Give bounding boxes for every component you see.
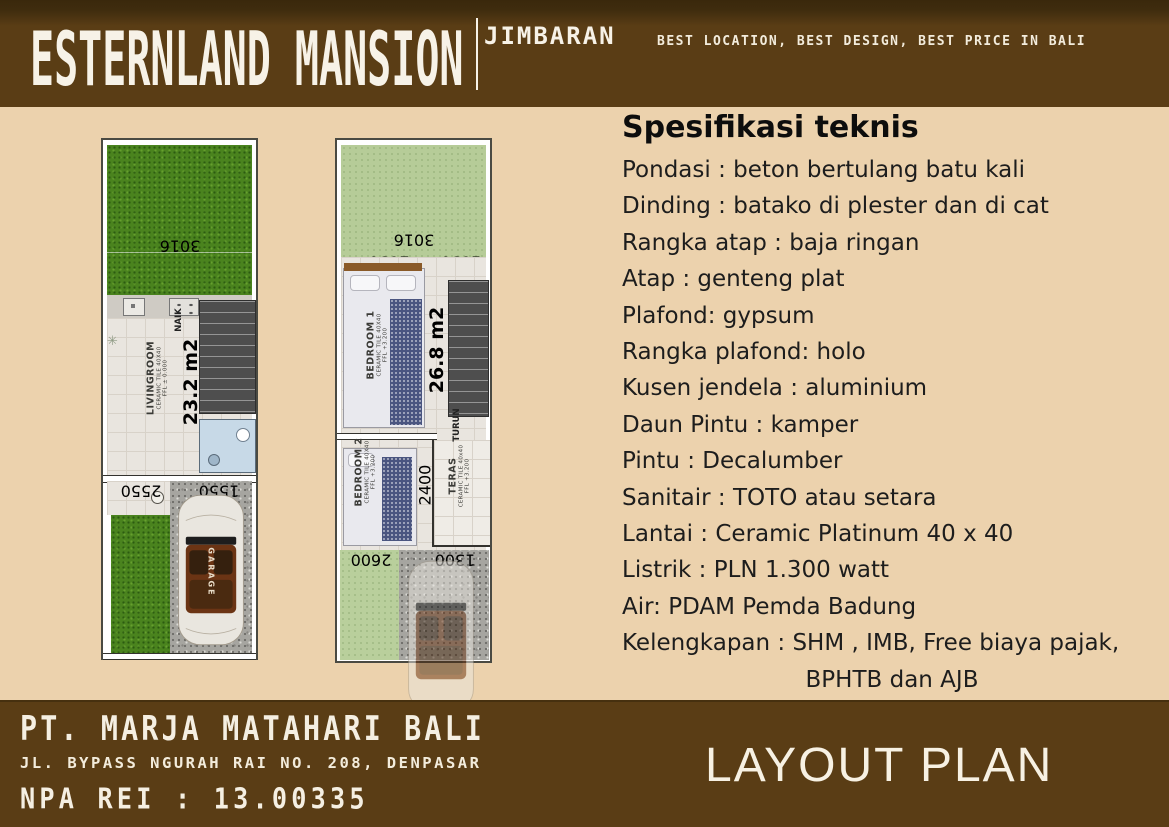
blanket [382, 457, 412, 541]
stair-direction-label: NAIK [174, 308, 184, 331]
spec-line: Kusen jendela : aluminium [622, 370, 1169, 406]
room-name: BEDROOM 1 [366, 311, 377, 380]
pillow [386, 275, 416, 291]
fence-wall [103, 653, 256, 660]
upper-floor-plan: 3016 2050 1050 BEDROOM 1 CERAMIC TILE 40… [335, 138, 492, 663]
garage-label: GARAGE [207, 547, 216, 596]
spec-line: Rangka atap : baja ringan [622, 225, 1169, 261]
stair-direction-label: TURUN [452, 408, 462, 441]
spec-line: Lantai : Ceramic Platinum 40 x 40 [622, 516, 1169, 552]
garden-area [107, 145, 252, 295]
spec-line: Kelengkapan : SHM , IMB, Free biaya paja… [622, 625, 1169, 661]
bathroom-area [199, 419, 256, 473]
garden-width-dim: 3016 [160, 237, 201, 256]
toilet-icon [236, 428, 250, 442]
pillow [350, 275, 380, 291]
plan-type-label: LAYOUT PLAN [705, 738, 1053, 793]
teras-label-block: TERAS CERAMIC TILE 40x40 FFL +3.200 [448, 445, 471, 508]
bedroom2-label-block: BEDROOM 2 CERAMIC TILE 40X40 FFL +3.200 [354, 438, 377, 507]
spec-line: Atap : genteng plat [622, 261, 1169, 297]
spec-line: Sanitair : TOTO atau setara [622, 480, 1169, 516]
shower-icon [208, 454, 220, 466]
spec-line: Pondasi : beton bertulang batu kali [622, 152, 1169, 188]
room-level: FFL +3.200 [383, 311, 389, 380]
spec-line-continuation: BPHTB dan AJB [682, 662, 1102, 698]
front-lawn [111, 515, 170, 653]
footer-bar: PT. MARJA MATAHARI BALI JL. BYPASS NGURA… [0, 700, 1169, 827]
ground-floor-plan: 3016 ✳ NAIK LIVINGROOM CERAMIC TILE 40X4… [101, 138, 258, 660]
brand-tagline: BEST LOCATION, BEST DESIGN, BEST PRICE I… [657, 34, 1086, 49]
spec-panel: Spesifikasi teknis Pondasi : beton bertu… [622, 110, 1169, 698]
bedroom1-label-block: BEDROOM 1 CERAMIC TILE 40X40 FFL +3.200 [366, 311, 389, 380]
plant-icon: ✳ [107, 334, 118, 349]
bedroom2-wall [337, 433, 437, 440]
title-divider [476, 18, 478, 90]
spec-line: Listrik : PLN 1.300 watt [622, 552, 1169, 588]
spec-heading: Spesifikasi teknis [622, 110, 1169, 146]
spec-line: Pintu : Decalumber [622, 443, 1169, 479]
room-name: TERAS [448, 445, 459, 508]
upper-area-label: 26.8 m2 [426, 307, 448, 394]
car-top-view-ghost [405, 558, 477, 688]
sink-icon [123, 298, 145, 316]
ground-area-label: 23.2 m2 [180, 339, 202, 426]
company-address: JL. BYPASS NGURAH RAI NO. 208, DENPASAR [20, 754, 481, 772]
room-level: FFL +3.200 [465, 445, 471, 508]
headboard [344, 263, 422, 271]
room-level: FFL ± 0.000 [163, 341, 169, 415]
spec-line: Plafond: gypsum [622, 298, 1169, 334]
stairs-down [448, 280, 489, 417]
car-top-view: GARAGE [175, 492, 247, 648]
stairs-up [199, 300, 256, 414]
yard-width-dim: 2600 [351, 551, 392, 570]
header-bar: ESTERNLAND MANSION JIMBARAN BEST LOCATIO… [0, 0, 1169, 107]
brand-title: ESTERNLAND MANSION [30, 16, 463, 103]
livingroom-label-block: LIVINGROOM CERAMIC TILE 40X40 FFL ± 0.00… [146, 341, 169, 415]
spec-line: Daun Pintu : kamper [622, 407, 1169, 443]
room-name: LIVINGROOM [146, 341, 157, 415]
room-level: FFL +3.200 [371, 438, 377, 507]
spec-line: Air: PDAM Pemda Badung [622, 589, 1169, 625]
roof-width-dim: 3016 [394, 231, 435, 250]
flyer-page: ESTERNLAND MANSION JIMBARAN BEST LOCATIO… [0, 0, 1169, 827]
garage-depth-dim: 2550 [121, 482, 162, 501]
spec-line: Rangka plafond: holo [622, 334, 1169, 370]
blanket [390, 299, 422, 425]
company-name: PT. MARJA MATAHARI BALI [20, 710, 485, 749]
spec-line: Dinding : batako di plester dan di cat [622, 188, 1169, 224]
brand-location: JIMBARAN [484, 22, 616, 50]
registration-number: NPA REI : 13.00335 [20, 782, 369, 816]
room-name: BEDROOM 2 [354, 438, 365, 507]
